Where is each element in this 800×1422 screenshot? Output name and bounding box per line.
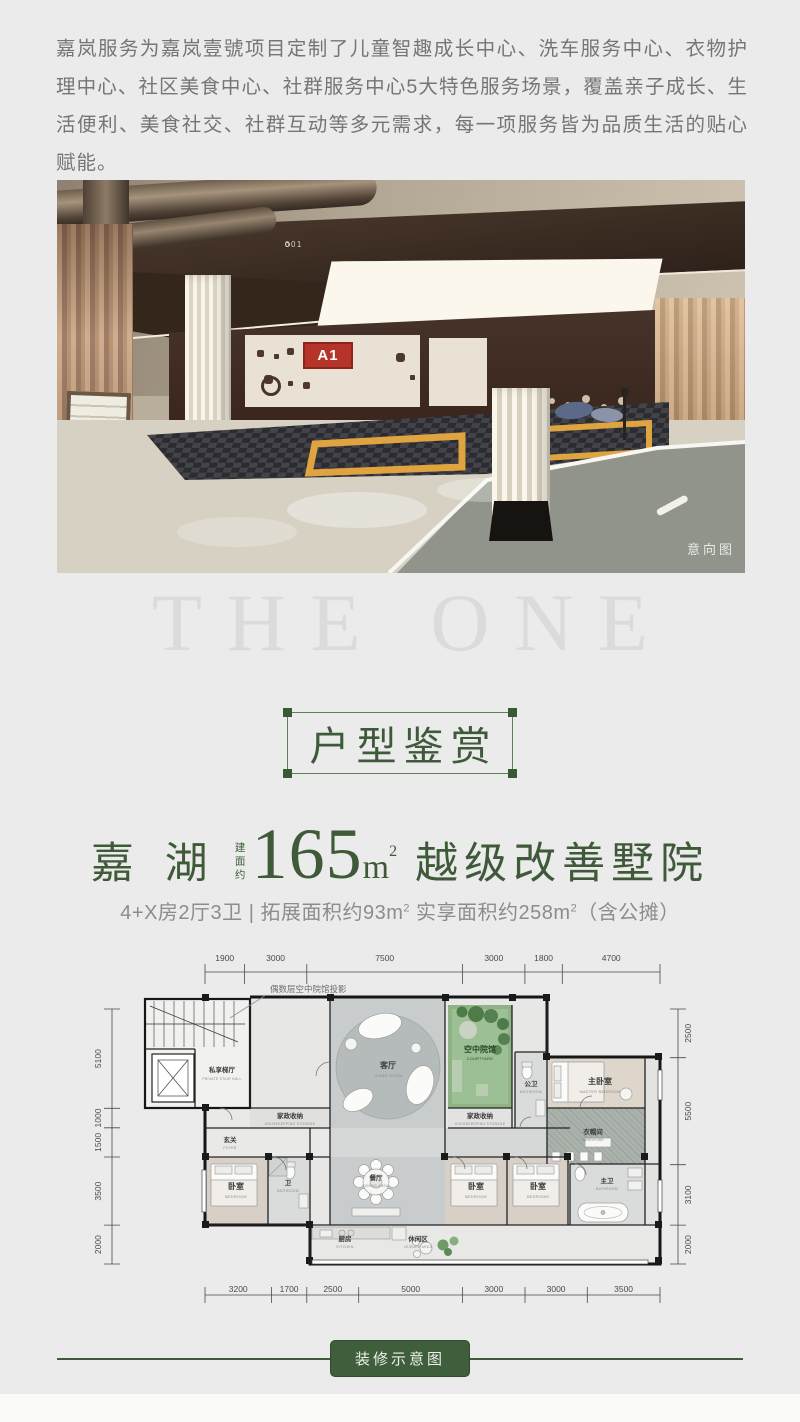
room-label: 卧室: [468, 1181, 484, 1191]
dim-label: 1800: [534, 953, 553, 963]
dim-label: 7500: [375, 953, 394, 963]
divider-line: [57, 1358, 330, 1360]
room-label: 家政收纳: [277, 1111, 304, 1120]
corner-square: [283, 708, 292, 717]
dim-label: 1000: [93, 1108, 103, 1127]
corner-square: [283, 769, 292, 778]
room-label-en: DINING AREA: [363, 1184, 389, 1188]
room-label: 卫: [285, 1179, 292, 1187]
dim-label: 1900: [215, 953, 234, 963]
corner-square: [508, 708, 517, 717]
dim-label: 3000: [484, 1284, 503, 1294]
divider-line: [470, 1358, 743, 1360]
dim-label: 5500: [683, 1101, 693, 1120]
room-label: 客厅: [379, 1060, 396, 1070]
headline: 嘉 湖 建面约 165 m2 越级改善墅院: [0, 824, 800, 890]
room-label-en: FOYER: [223, 1146, 236, 1150]
room-number-text: 001: [285, 240, 303, 249]
dim-label: 2000: [683, 1235, 693, 1254]
floor-plan-svg: 偶数层空中院馆投影 1900 3000 7500 3000 1800 4700 …: [80, 942, 720, 1314]
area-prefix: 建面约: [232, 842, 247, 883]
stanchion-pole: [623, 392, 626, 440]
corner-square: [508, 769, 517, 778]
dim-label: 5100: [93, 1049, 103, 1068]
dim-label: 2000: [93, 1235, 103, 1254]
dim-label: 2500: [323, 1284, 342, 1294]
room-label-en: KITCHEN: [337, 1245, 354, 1249]
room-label-en: BATHROOM: [596, 1187, 618, 1191]
intro-paragraph: 嘉岚服务为嘉岚壹號项目定制了儿童智趣成长中心、洗车服务中心、衣物护理中心、社区美…: [56, 30, 748, 182]
room-label-en: LIVING ROOM: [374, 1074, 403, 1078]
room-label: 私享梯厅: [208, 1065, 236, 1074]
dim-label: 1500: [93, 1133, 103, 1152]
dim-label: 3100: [683, 1185, 693, 1204]
renovation-badge: 装修示意图: [330, 1340, 470, 1377]
showroom-photo: A1: [57, 180, 745, 573]
product-name: 嘉 湖: [91, 829, 218, 891]
section-title-box: 户型鉴赏: [287, 712, 513, 774]
room-label-en: PRIVATE STAIR HALL: [202, 1077, 242, 1081]
room-label: 公卫: [525, 1080, 539, 1088]
dim-label: 4700: [602, 953, 621, 963]
dim-label: 3500: [614, 1284, 633, 1294]
room-label-en: MASTER BEDROOM: [580, 1090, 621, 1094]
room-label: 卧室: [530, 1181, 546, 1191]
renovation-badge-row: 装修示意图: [57, 1340, 743, 1377]
fluted-column: [492, 388, 550, 541]
room-label: 主卫: [601, 1176, 615, 1185]
room-label: 厨房: [339, 1234, 353, 1243]
room-label: 玄关: [224, 1135, 238, 1144]
dim-label: 5000: [401, 1284, 420, 1294]
room-label: 空中院馆: [464, 1044, 496, 1054]
room-number-sign: 001: [285, 242, 290, 247]
room-label: 家政收纳: [467, 1111, 494, 1120]
dim-label: 3000: [266, 953, 285, 963]
dim-label: 3000: [547, 1284, 566, 1294]
room-label-en: BATHROOM: [277, 1189, 299, 1193]
room-label-en: LEISURE AREA: [404, 1245, 433, 1249]
room-label: 休闲区: [407, 1234, 428, 1243]
room-label-en: BEDROOM: [527, 1195, 549, 1199]
dim-label: 3200: [229, 1284, 248, 1294]
footer-strip: [0, 1394, 800, 1422]
area-value: 165: [252, 824, 363, 885]
brochure-page: 嘉岚服务为嘉岚壹號项目定制了儿童智趣成长中心、洗车服务中心、衣物护理中心、社区美…: [0, 0, 800, 1422]
room-label-en: WARDROBE: [582, 1138, 605, 1142]
room-label-en: COURTYARD: [467, 1057, 493, 1061]
room-label-en: BEDROOM: [225, 1195, 247, 1199]
dim-label: 3000: [484, 953, 503, 963]
dim-label: 1700: [280, 1284, 299, 1294]
room-label-en: HOUSEKEEPING STORAGE: [265, 1122, 316, 1126]
room-label: 餐厅: [369, 1173, 384, 1182]
dim-label: 2500: [683, 1024, 693, 1043]
watermark-title: THE ONE: [0, 582, 800, 664]
room-label: 衣帽间: [583, 1127, 603, 1136]
floor-plan: 偶数层空中院馆投影 1900 3000 7500 3000 1800 4700 …: [80, 942, 720, 1314]
room-label: 主卧室: [588, 1076, 612, 1086]
floor-graphics: [57, 180, 745, 573]
dim-label: 3500: [93, 1181, 103, 1200]
annotation-text: 偶数层空中院馆投影: [270, 984, 347, 994]
spec-line: 4+X房2厅3卫 | 拓展面积约93m2 实享面积约258m2（含公摊）: [0, 896, 800, 925]
tagline: 越级改善墅院: [415, 829, 709, 891]
room-label: 卧室: [228, 1181, 244, 1191]
section-title: 户型鉴赏: [303, 714, 498, 772]
room-label-en: BATHROOM: [520, 1090, 542, 1094]
area-unit: m2: [363, 843, 397, 887]
room-label-en: HOUSEKEEPING STORAGE: [455, 1122, 506, 1126]
photo-watermark: 意向图: [687, 539, 735, 558]
room-label-en: BEDROOM: [465, 1195, 487, 1199]
